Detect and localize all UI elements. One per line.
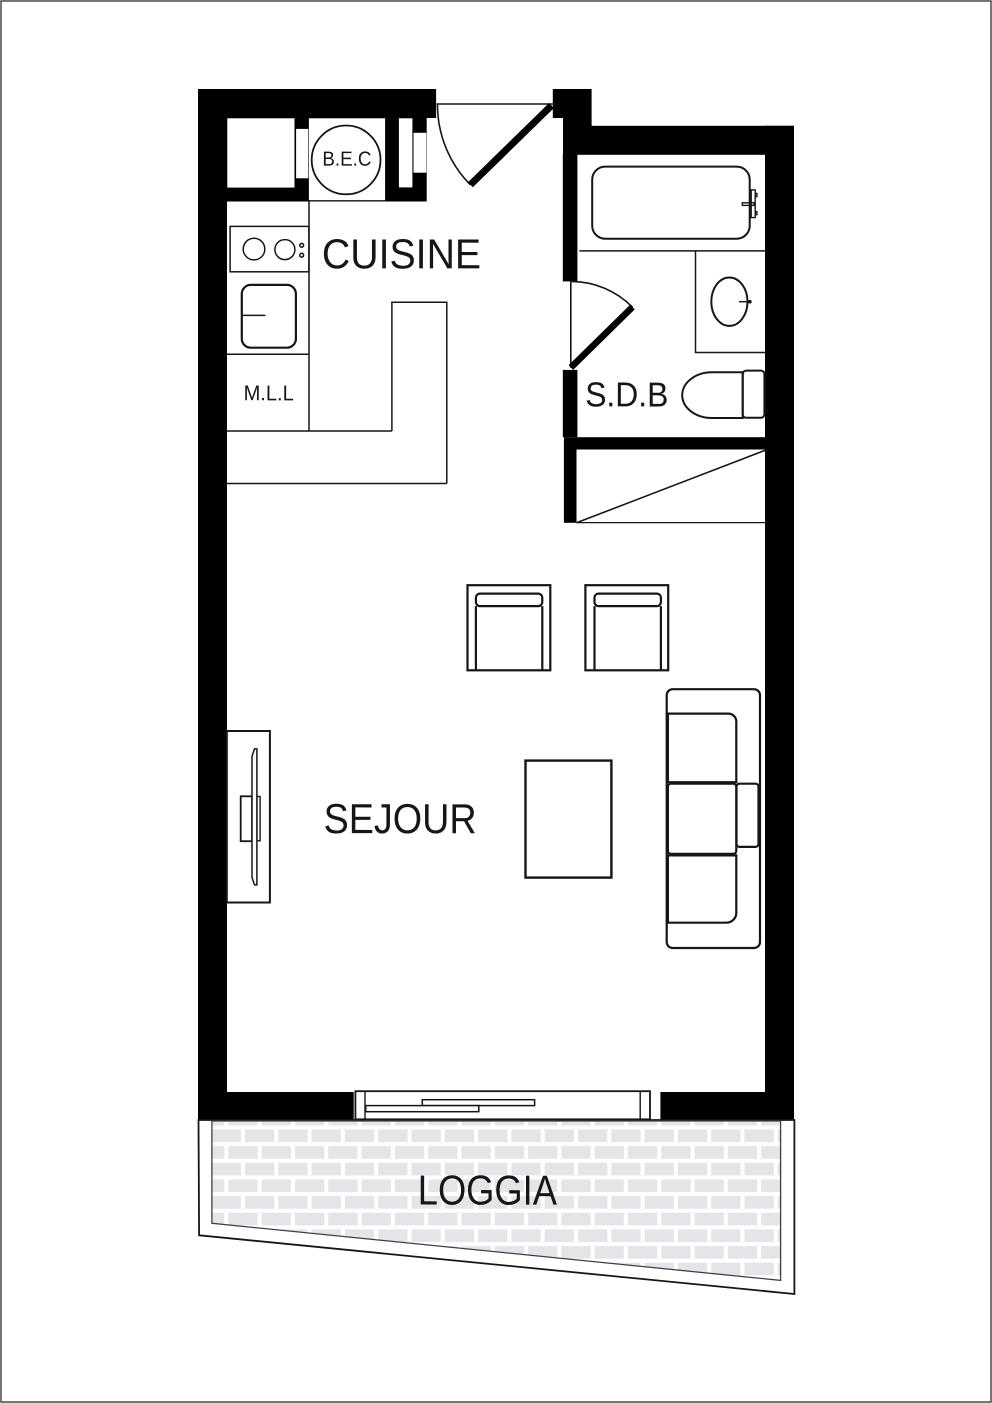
svg-text:SEJOUR: SEJOUR	[324, 795, 477, 842]
svg-text:S.D.B: S.D.B	[585, 376, 668, 414]
svg-text:LOGGIA: LOGGIA	[418, 1167, 557, 1214]
svg-text:B.E.C: B.E.C	[322, 149, 371, 171]
svg-text:M.L.L: M.L.L	[244, 381, 294, 405]
svg-text:CUISINE: CUISINE	[322, 230, 481, 277]
